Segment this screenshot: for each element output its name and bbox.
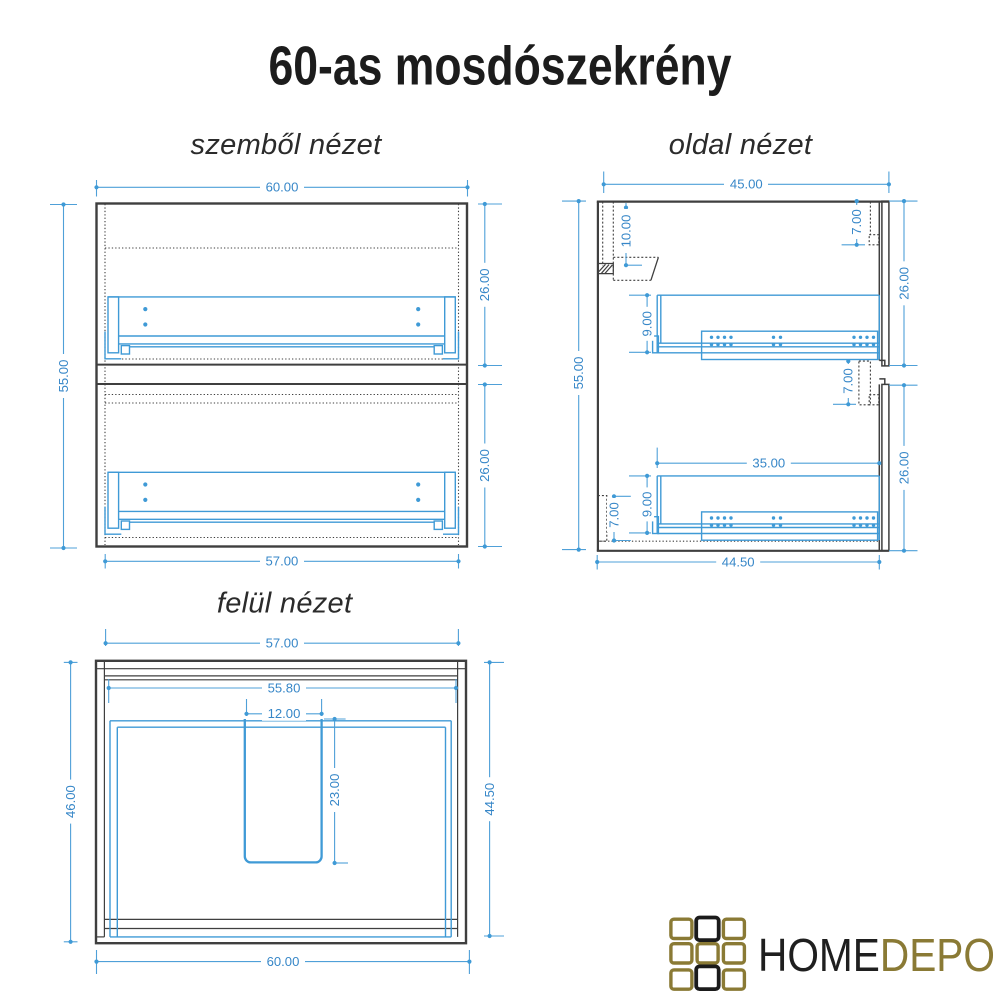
svg-text:23.00: 23.00 — [327, 774, 342, 807]
svg-text:oldal nézet: oldal nézet — [669, 129, 814, 161]
svg-text:55.00: 55.00 — [571, 357, 586, 390]
svg-text:46.00: 46.00 — [63, 785, 78, 818]
svg-text:26.00: 26.00 — [477, 268, 492, 301]
svg-text:26.00: 26.00 — [896, 452, 911, 485]
svg-text:9.00: 9.00 — [640, 311, 655, 336]
svg-text:55.80: 55.80 — [268, 680, 301, 695]
svg-text:26.00: 26.00 — [896, 267, 911, 300]
svg-text:7.00: 7.00 — [841, 368, 856, 393]
svg-text:60-as mosdószekrény: 60-as mosdószekrény — [269, 35, 732, 97]
svg-text:55.00: 55.00 — [56, 360, 71, 393]
svg-text:9.00: 9.00 — [640, 492, 655, 517]
svg-text:12.00: 12.00 — [268, 706, 301, 721]
svg-text:57.00: 57.00 — [266, 636, 299, 651]
svg-text:60.00: 60.00 — [266, 180, 299, 195]
svg-text:35.00: 35.00 — [752, 456, 785, 471]
svg-text:10.00: 10.00 — [618, 215, 633, 248]
svg-text:57.00: 57.00 — [266, 554, 299, 569]
svg-text:felül nézet: felül nézet — [217, 588, 354, 620]
svg-text:44.50: 44.50 — [722, 554, 755, 569]
svg-text:7.00: 7.00 — [849, 209, 864, 234]
svg-text:60.00: 60.00 — [267, 954, 300, 969]
svg-text:45.00: 45.00 — [730, 177, 763, 192]
svg-text:7.00: 7.00 — [606, 502, 621, 527]
svg-text:44.50: 44.50 — [482, 783, 497, 816]
svg-text:26.00: 26.00 — [477, 449, 492, 482]
svg-text:szemből nézet: szemből nézet — [191, 129, 384, 161]
svg-text:HOMEDEPO: HOMEDEPO — [758, 929, 995, 981]
